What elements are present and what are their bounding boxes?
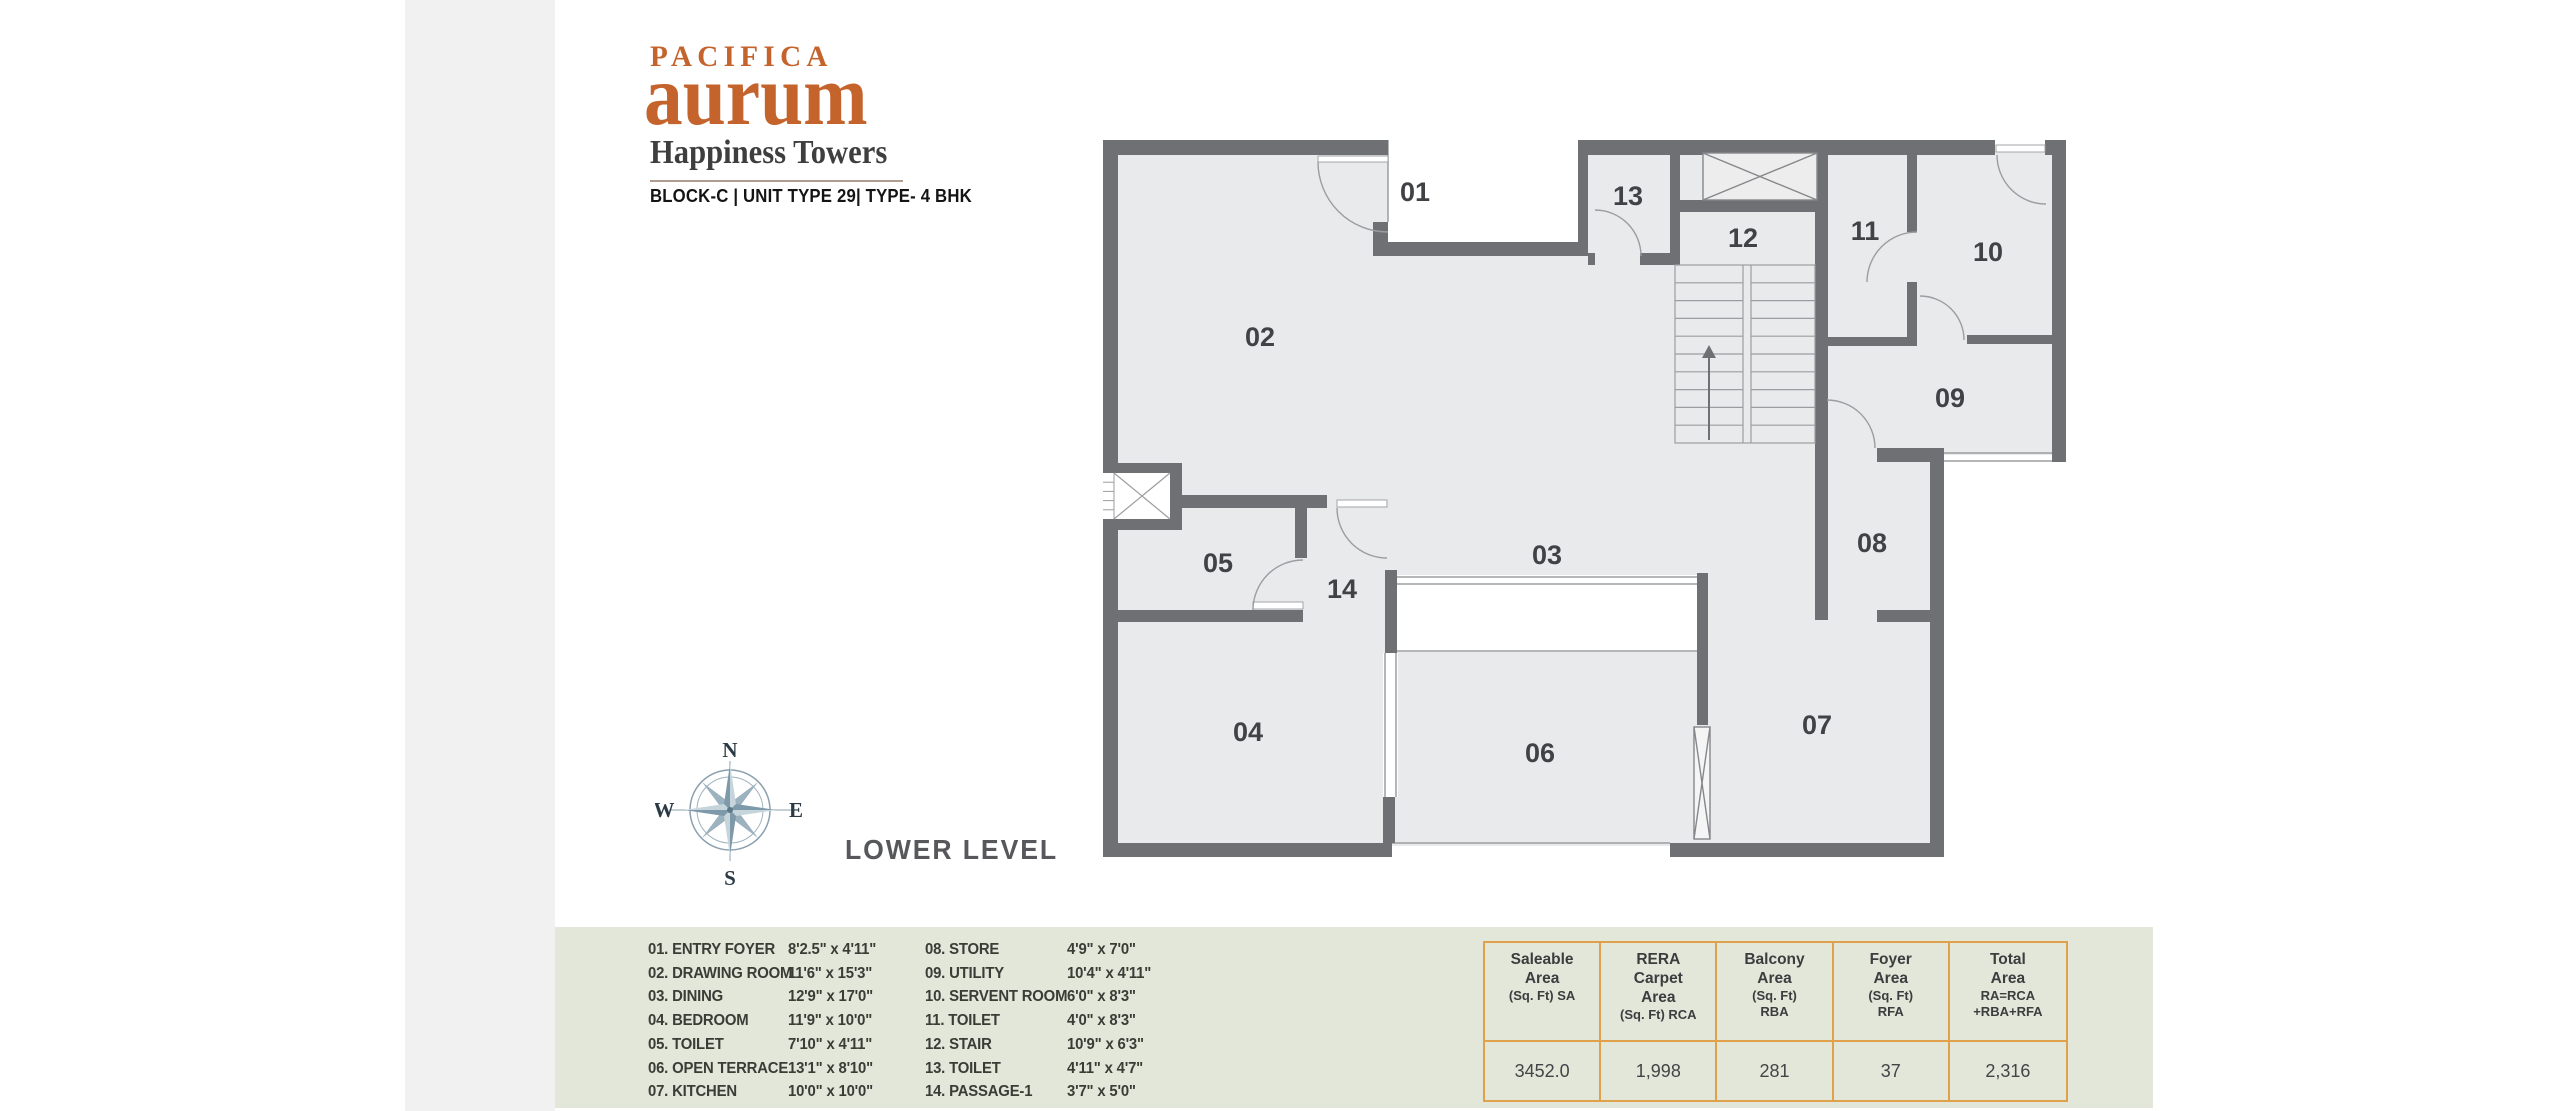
legend-room-name: 08. STORE: [925, 941, 999, 959]
legend-row: 02. DRAWING ROOM11'6" x 15'3"09. UTILITY…: [648, 965, 1288, 989]
legend-room-dim: 4'0" x 8'3": [1067, 1012, 1136, 1030]
floor-plan: 0102030405060708091011121314: [1090, 125, 2080, 875]
room-label-12: 12: [1728, 223, 1758, 253]
area-table-header-cell: BalconyArea(Sq. Ft)RBA: [1717, 943, 1833, 1042]
left-gray-strip: [405, 0, 555, 1111]
legend-room-dim: 10'0" x 10'0": [788, 1083, 873, 1101]
legend-room-dim: 3'7" x 5'0": [1067, 1083, 1136, 1101]
area-table-value-cell: 1,998: [1601, 1042, 1717, 1100]
compass-letter-s: S: [724, 866, 736, 889]
room-label-05: 05: [1203, 548, 1233, 578]
legend-room-dim: 11'9" x 10'0": [788, 1012, 872, 1030]
legend-room-dim: 11'6" x 15'3": [788, 965, 872, 983]
legend-room-dim: 10'4" x 4'11": [1067, 965, 1151, 983]
page: PACIFICA aurum Happiness Towers BLOCK-C …: [0, 0, 2560, 1111]
legend-room-name: 14. PASSAGE-1: [925, 1083, 1032, 1101]
legend-room-name: 13. TOILET: [925, 1060, 1001, 1078]
brand-aurum: aurum: [644, 52, 868, 138]
legend-room-name: 10. SERVENT ROOM: [925, 988, 1067, 1006]
room-label-11: 11: [1851, 216, 1880, 246]
legend-room-name: 06. OPEN TERRACE: [648, 1060, 788, 1078]
room-label-14: 14: [1327, 574, 1357, 604]
room-label-03: 03: [1532, 540, 1562, 570]
legend-room-dim: 4'9" x 7'0": [1067, 941, 1136, 959]
compass-letter-n: N: [722, 738, 737, 762]
room-label-09: 09: [1935, 383, 1965, 413]
room-label-02: 02: [1245, 322, 1275, 352]
legend-row: 01. ENTRY FOYER8'2.5" x 4'11"08. STORE4'…: [648, 941, 1288, 965]
legend-room-dim: 6'0" x 8'3": [1067, 988, 1136, 1006]
area-table-value-cell: 2,316: [1950, 1042, 2066, 1100]
area-table-value-row: 3452.01,998281372,316: [1485, 1042, 2066, 1100]
legend-room-dim: 8'2.5" x 4'11": [788, 941, 876, 959]
brand-rule: [650, 180, 903, 182]
area-table-value-cell: 3452.0: [1485, 1042, 1601, 1100]
room-label-13: 13: [1613, 181, 1643, 211]
legend-room-name: 09. UTILITY: [925, 965, 1004, 983]
compass-rose-icon: NESW: [655, 733, 805, 889]
legend-room-dim: 13'1" x 8'10": [788, 1060, 873, 1078]
room-label-08: 08: [1857, 528, 1887, 558]
legend-room-name: 07. KITCHEN: [648, 1083, 737, 1101]
area-table-header-row: SaleableArea(Sq. Ft) SARERACarpetArea(Sq…: [1485, 943, 2066, 1042]
legend-room-name: 03. DINING: [648, 988, 723, 1006]
legend-room-name: 05. TOILET: [648, 1036, 724, 1054]
legend-room-name: 12. STAIR: [925, 1036, 992, 1054]
area-table-value-cell: 37: [1834, 1042, 1950, 1100]
room-label-04: 04: [1233, 717, 1263, 747]
legend-row: 07. KITCHEN10'0" x 10'0"14. PASSAGE-13'7…: [648, 1083, 1288, 1107]
compass-letter-w: W: [655, 798, 675, 822]
area-table-header-cell: SaleableArea(Sq. Ft) SA: [1485, 943, 1601, 1042]
legend-room-name: 02. DRAWING ROOM: [648, 965, 792, 983]
legend-room-name: 01. ENTRY FOYER: [648, 941, 775, 959]
level-label: LOWER LEVEL: [845, 834, 1058, 866]
room-label-07: 07: [1802, 710, 1832, 740]
legend-room-dim: 4'11" x 4'7": [1067, 1060, 1143, 1078]
room-label-06: 06: [1525, 738, 1555, 768]
legend-row: 05. TOILET7'10" x 4'11"12. STAIR10'9" x …: [648, 1036, 1288, 1060]
area-table: SaleableArea(Sq. Ft) SARERACarpetArea(Sq…: [1483, 941, 2068, 1102]
room-label-01: 01: [1400, 177, 1430, 207]
compass-letter-e: E: [789, 798, 803, 822]
legend-room-dim: 12'9" x 17'0": [788, 988, 873, 1006]
room-label-10: 10: [1973, 237, 2003, 267]
legend-room-dim: 10'9" x 6'3": [1067, 1036, 1144, 1054]
legend-row: 04. BEDROOM11'9" x 10'0"11. TOILET4'0" x…: [648, 1012, 1288, 1036]
area-table-value-cell: 281: [1717, 1042, 1833, 1100]
legend-room-dim: 7'10" x 4'11": [788, 1036, 872, 1054]
legend-room-name: 04. BEDROOM: [648, 1012, 748, 1030]
area-table-header-cell: FoyerArea(Sq. Ft)RFA: [1834, 943, 1950, 1042]
elevator-shaft: [1103, 473, 1170, 519]
area-table-header-cell: RERACarpetArea(Sq. Ft) RCA: [1601, 943, 1717, 1042]
area-table-header-cell: TotalAreaRA=RCA+RBA+RFA: [1950, 943, 2066, 1042]
brand-happiness-towers: Happiness Towers: [650, 134, 887, 172]
legend-room-name: 11. TOILET: [925, 1012, 1000, 1030]
brand-unit-info: BLOCK-C | UNIT TYPE 29| TYPE- 4 BHK: [650, 186, 972, 207]
legend-row: 06. OPEN TERRACE13'1" x 8'10"13. TOILET4…: [648, 1060, 1288, 1084]
legend-row: 03. DINING12'9" x 17'0"10. SERVENT ROOM6…: [648, 988, 1288, 1012]
